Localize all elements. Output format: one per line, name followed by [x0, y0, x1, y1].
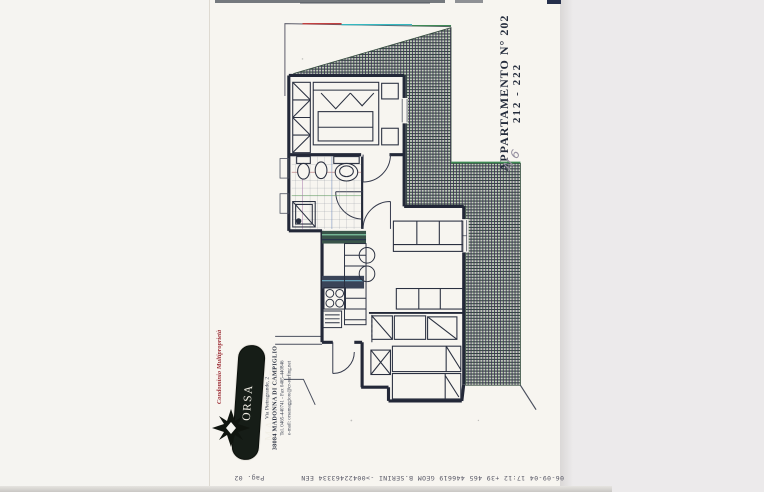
address-city: 38084 MADONNA DI CAMPIGLIO: [272, 335, 279, 462]
fax-header-text: 06-09-04 17:12 +39 465 446619 GEOM B.SER…: [301, 470, 564, 482]
scan-artifact: [455, 0, 483, 3]
scanned-fax-page: APPARTAMENTO N° 202 212 - 222 N 6 Condom…: [0, 0, 764, 492]
compass-star-icon: [212, 409, 250, 447]
fax-transmission-header: 06-09-04 17:12 +39 465 446619 GEOM B.SER…: [234, 470, 564, 482]
address-email: e-mail: orsamaggiore@cr-surfing.net: [287, 335, 294, 462]
address-phone: Tel. 0465-440741 - Fax 0465-440846: [279, 335, 286, 462]
address-street: Via Pietragrande, 2: [265, 335, 272, 462]
scan-artifact: [300, 2, 430, 4]
bathroom: [292, 157, 361, 229]
living-room-furniture: [393, 221, 462, 309]
logo-address-block: Via Pietragrande, 2 38084 MADONNA DI CAM…: [265, 335, 295, 462]
scan-artifact: [547, 0, 561, 4]
scanner-background-left: [0, 0, 209, 492]
bedroom-furniture: [293, 82, 399, 152]
scanner-background-right: [559, 0, 764, 492]
fax-page-number: Pag. 02: [234, 470, 264, 482]
logo-tagline: Condominio Multiproprietà: [216, 322, 228, 412]
page-bottom-shadow: [0, 486, 612, 492]
kitchen: [322, 231, 375, 328]
